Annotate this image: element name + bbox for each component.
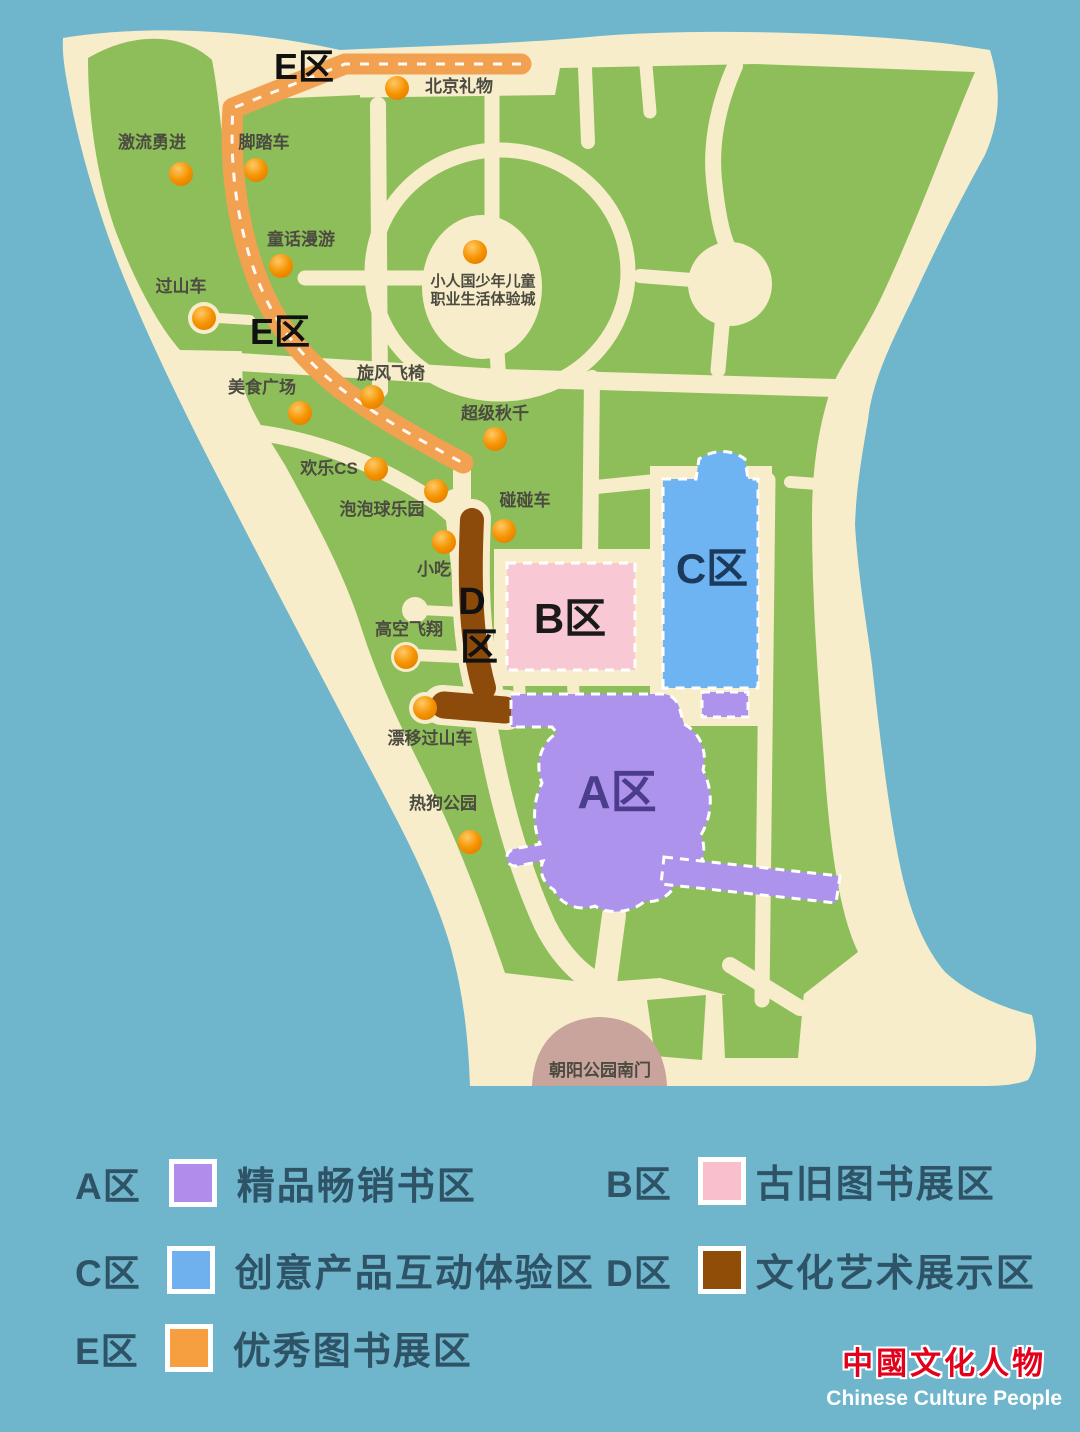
legend-item-d: D区 文化艺术展示区	[606, 1242, 1036, 1297]
label-sky-flyer: 高空飞翔	[375, 619, 443, 639]
dot-bubble-park	[424, 479, 448, 503]
logo-chinese-text: 中國文化人物	[826, 1338, 1062, 1383]
label-bumper-car: 碰碰车	[500, 490, 551, 510]
zone-label-c: C区	[676, 545, 748, 592]
legend-desc-d: 文化艺术展示区	[756, 1242, 1036, 1297]
legend-zone-a: A区	[75, 1156, 141, 1210]
zone-label-a: A区	[577, 766, 656, 818]
dot-drift-coaster	[413, 696, 437, 720]
label-mini-city-1: 小人国少年儿童	[430, 272, 535, 290]
label-hotdog-park: 热狗公园	[409, 793, 477, 813]
dot-pedal-car	[244, 158, 268, 182]
dot-food-plaza	[288, 401, 312, 425]
label-snacks: 小吃	[417, 559, 451, 579]
legend-desc-b: 古旧图书展区	[756, 1153, 996, 1208]
legend-swatch-c	[167, 1246, 215, 1294]
legend-desc-c: 创意产品互动体验区	[235, 1242, 595, 1297]
legend-item-a: A区 精品畅销书区	[75, 1155, 477, 1210]
site-logo: 中國文化人物 Chinese Culture People	[826, 1338, 1062, 1411]
label-super-swing: 超级秋千	[461, 403, 529, 423]
label-mini-city-2: 职业生活体验城	[430, 290, 535, 308]
legend-zone-e: E区	[75, 1321, 139, 1375]
dot-swing-chair	[360, 385, 384, 409]
dot-happy-cs	[364, 457, 388, 481]
label-flume: 激流勇进	[118, 132, 186, 152]
label-fairy-tale: 童话漫游	[267, 229, 335, 249]
label-bubble-park: 泡泡球乐园	[340, 499, 425, 519]
label-drift-coaster: 漂移过山车	[388, 728, 473, 748]
label-swing-chair: 旋风飞椅	[356, 363, 425, 383]
legend-item-b: B区 古旧图书展区	[606, 1153, 996, 1208]
dot-bumper-car	[492, 519, 516, 543]
dot-coaster	[192, 306, 216, 330]
label-pedal-car: 脚踏车	[239, 132, 290, 152]
label-south-gate: 朝阳公园南门	[549, 1060, 651, 1080]
zone-label-d-2: 区	[460, 627, 498, 669]
legend-item-c: C区 创意产品互动体验区	[75, 1242, 595, 1297]
dot-snacks	[432, 530, 456, 554]
label-happy-cs: 欢乐CS	[299, 458, 358, 478]
zone-label-e-top: E区	[274, 46, 334, 87]
legend-swatch-b	[698, 1157, 746, 1205]
legend-desc-e: 优秀图书展区	[233, 1320, 473, 1375]
legend-swatch-d	[698, 1246, 746, 1294]
label-coaster: 过山车	[156, 276, 207, 296]
dot-hotdog-park	[458, 830, 482, 854]
dot-super-swing	[483, 427, 507, 451]
label-beijing-gift: 北京礼物	[425, 76, 493, 96]
dot-fairy-tale	[269, 254, 293, 278]
park-map: 北京礼物 激流勇进 脚踏车 童话漫游 过山车 小人国少年儿童 职业生活体验城 美…	[0, 0, 1080, 1432]
label-food-plaza: 美食广场	[228, 377, 296, 397]
legend-zone-c: C区	[75, 1243, 141, 1297]
dot-flume	[169, 162, 193, 186]
legend-zone-b: B区	[606, 1154, 672, 1208]
zone-label-b: B区	[534, 595, 606, 642]
dot-beijing-gift	[385, 76, 409, 100]
legend-swatch-a	[169, 1159, 217, 1207]
dot-mini-city	[463, 240, 487, 264]
zone-label-e-mid: E区	[250, 311, 310, 352]
legend-item-e: E区 优秀图书展区	[75, 1320, 473, 1375]
zone-label-d-1: D	[458, 581, 485, 623]
legend-swatch-e	[165, 1324, 213, 1372]
legend-zone-d: D区	[606, 1243, 672, 1297]
legend-desc-a: 精品畅销书区	[237, 1155, 477, 1210]
logo-english-text: Chinese Culture People	[826, 1387, 1062, 1411]
dot-sky-flyer	[394, 645, 418, 669]
